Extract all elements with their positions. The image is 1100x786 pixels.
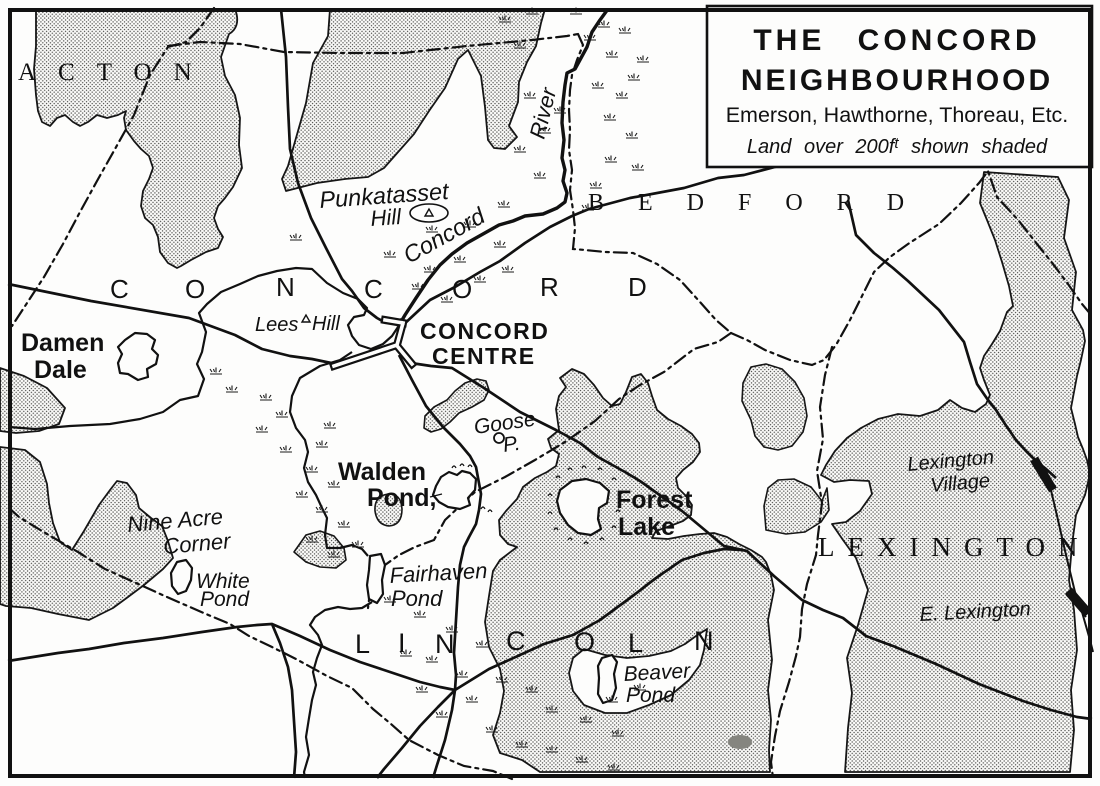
svg-text:THE CONCORD: THE CONCORD — [753, 24, 1040, 57]
svg-text:Lake: Lake — [618, 513, 675, 541]
svg-text:Pond: Pond — [391, 586, 443, 611]
svg-text:C: C — [364, 274, 383, 304]
svg-text:I: I — [398, 628, 406, 658]
svg-text:D: D — [628, 272, 647, 302]
svg-text:Damen: Damen — [21, 329, 104, 357]
svg-text:O: O — [452, 274, 472, 304]
svg-text:BEDFORD: BEDFORD — [588, 190, 938, 216]
svg-text:L: L — [628, 628, 643, 658]
svg-text:N: N — [694, 626, 714, 656]
svg-text:Pond: Pond — [200, 588, 250, 611]
svg-text:N: N — [276, 272, 295, 302]
svg-text:ACTON: ACTON — [18, 59, 214, 86]
svg-text:N: N — [435, 629, 455, 659]
svg-text:C: C — [110, 274, 129, 304]
svg-text:LEXINGTON: LEXINGTON — [818, 532, 1090, 562]
svg-text:Walden: Walden — [338, 458, 426, 486]
svg-text:Emerson, Hawthorne, Thoreau, E: Emerson, Hawthorne, Thoreau, Etc. — [726, 103, 1069, 127]
svg-text:CENTRE: CENTRE — [432, 343, 536, 369]
svg-text:Hill: Hill — [312, 313, 340, 335]
svg-text:Dale: Dale — [34, 356, 87, 384]
svg-text:Fairhaven: Fairhaven — [389, 558, 488, 588]
svg-text:O: O — [185, 274, 205, 304]
svg-text:Hill: Hill — [370, 204, 403, 231]
svg-text:L: L — [355, 629, 370, 659]
svg-text:R: R — [540, 272, 559, 302]
svg-text:Pond: Pond — [626, 684, 676, 707]
svg-text:Pond,: Pond, — [367, 484, 436, 512]
svg-text:Forest: Forest — [616, 486, 693, 514]
svg-text:CONCORD: CONCORD — [420, 318, 549, 344]
svg-text:NEIGHBOURHOOD: NEIGHBOURHOOD — [741, 64, 1053, 97]
svg-text:C: C — [506, 626, 526, 656]
svg-text:Lees: Lees — [255, 314, 298, 336]
svg-text:Beaver: Beaver — [623, 659, 692, 686]
svg-text:P.: P. — [501, 432, 521, 457]
svg-text:O: O — [574, 627, 595, 657]
